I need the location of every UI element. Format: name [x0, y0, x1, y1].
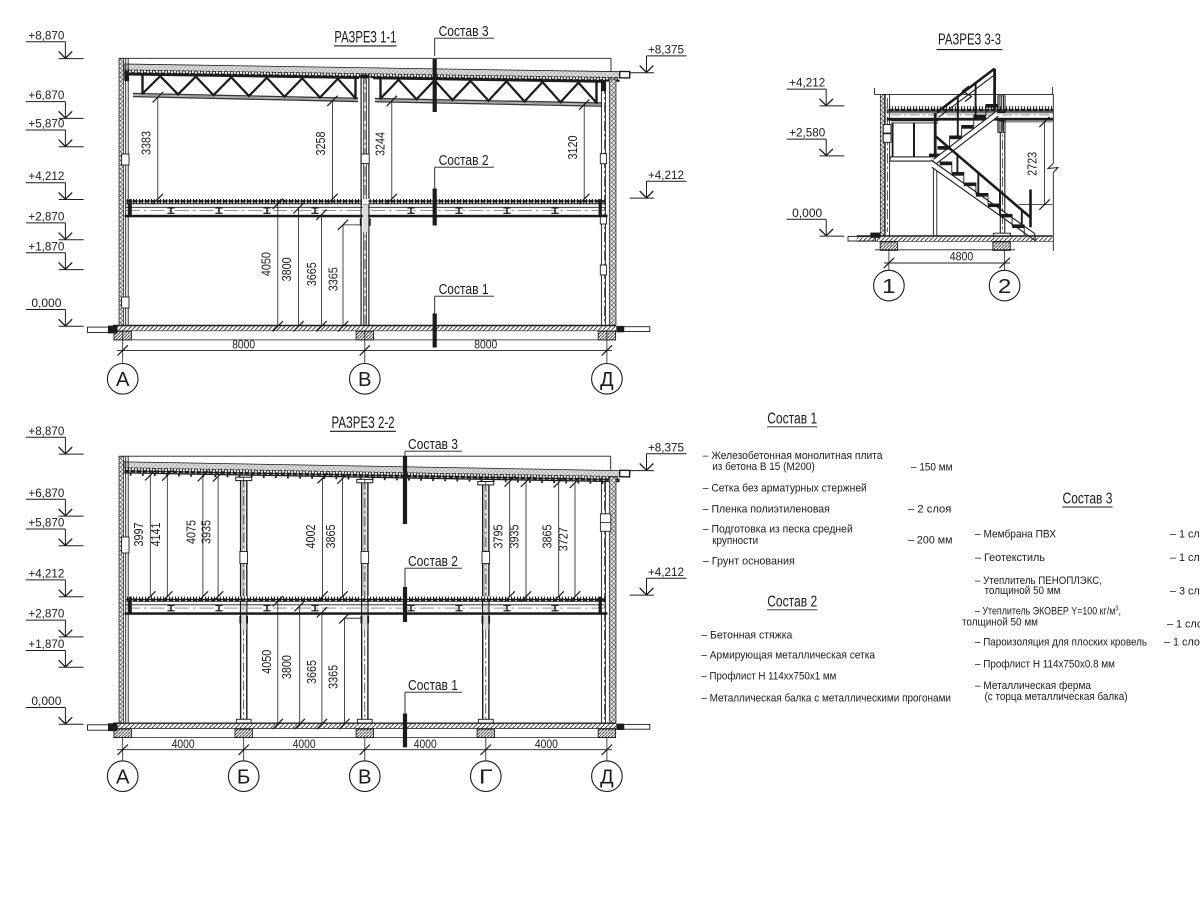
- svg-text:3935: 3935: [200, 520, 214, 544]
- svg-text:– Армирующая металлическая се: – Армирующая металлическая сетка: [701, 650, 875, 662]
- svg-text:2723: 2723: [1026, 152, 1040, 176]
- svg-text:РАЗРЕЗ 1-1: РАЗРЕЗ 1-1: [334, 29, 396, 47]
- svg-text:Состав 1: Состав 1: [408, 678, 458, 694]
- svg-text:3244: 3244: [373, 132, 387, 156]
- svg-text:– Подготовка из песка средней: – Подготовка из песка средней: [703, 524, 853, 536]
- svg-text:– 200 мм: – 200 мм: [908, 535, 953, 547]
- svg-text:Г: Г: [479, 766, 493, 789]
- svg-text:+6,870: +6,870: [28, 90, 64, 102]
- svg-text:3665: 3665: [305, 660, 319, 684]
- svg-text:4000: 4000: [535, 739, 558, 751]
- svg-text:Б: Б: [237, 766, 251, 789]
- svg-text:+1,870: +1,870: [28, 241, 64, 253]
- svg-text:3800: 3800: [280, 655, 294, 679]
- svg-text:Состав 1: Состав 1: [439, 282, 489, 298]
- svg-text:– Профлист Н 114х750х0.8 мм: – Профлист Н 114х750х0.8 мм: [975, 658, 1115, 670]
- svg-text:0,000: 0,000: [792, 208, 822, 220]
- svg-text:1: 1: [882, 275, 896, 298]
- svg-text:РАЗРЕЗ 3-3: РАЗРЕЗ 3-3: [938, 32, 1001, 49]
- svg-text:0,000: 0,000: [31, 696, 61, 708]
- svg-text:Состав 3: Состав 3: [408, 437, 458, 453]
- svg-text:Д: Д: [600, 368, 614, 391]
- svg-text:0,000: 0,000: [31, 298, 61, 310]
- svg-text:+2,580: +2,580: [789, 128, 825, 140]
- svg-text:толщиной 50 мм: толщиной 50 мм: [985, 585, 1061, 597]
- svg-text:толщиной 50 мм: толщиной 50 мм: [962, 616, 1038, 628]
- svg-text:– Грунт основания: – Грунт основания: [703, 556, 795, 568]
- svg-text:4000: 4000: [414, 739, 437, 751]
- svg-text:3665: 3665: [305, 262, 319, 286]
- svg-text:3365: 3365: [326, 665, 340, 689]
- svg-text:3800: 3800: [280, 257, 294, 281]
- svg-text:3383: 3383: [139, 131, 153, 155]
- svg-text:4800: 4800: [950, 251, 974, 263]
- svg-text:В: В: [358, 766, 372, 789]
- svg-text:– Бетонная стяжка: – Бетонная стяжка: [701, 630, 792, 642]
- svg-text:+8,870: +8,870: [28, 426, 64, 438]
- svg-text:3727: 3727: [557, 527, 571, 551]
- svg-text:+4,212: +4,212: [789, 78, 825, 90]
- svg-text:3865: 3865: [540, 524, 554, 548]
- svg-text:3795: 3795: [491, 524, 505, 548]
- svg-text:+4,212: +4,212: [28, 171, 64, 183]
- svg-text:– 1 слой: – 1 слой: [1167, 619, 1200, 631]
- svg-text:Д: Д: [600, 766, 614, 789]
- svg-text:– 1 слой: – 1 слой: [1170, 529, 1200, 541]
- svg-text:– 3 слоя: – 3 слоя: [1170, 586, 1200, 598]
- svg-text:– 2 слоя: – 2 слоя: [908, 503, 951, 515]
- svg-text:3865: 3865: [324, 524, 338, 548]
- svg-text:2: 2: [998, 275, 1012, 298]
- svg-text:4000: 4000: [293, 739, 316, 751]
- svg-text:+4,212: +4,212: [648, 567, 684, 579]
- svg-text:Состав 2: Состав 2: [439, 153, 489, 169]
- svg-text:– Мембрана ПВХ: – Мембрана ПВХ: [975, 529, 1056, 541]
- svg-text:+2,870: +2,870: [28, 609, 64, 621]
- svg-text:– 1 слой: – 1 слой: [1170, 552, 1200, 564]
- svg-text:Состав 3: Состав 3: [1063, 491, 1113, 508]
- svg-text:+5,870: +5,870: [28, 518, 64, 530]
- svg-text:+2,870: +2,870: [28, 211, 64, 223]
- svg-text:– Пароизоляция для плоских кр: – Пароизоляция для плоских кровель: [975, 637, 1147, 649]
- svg-text:4141: 4141: [149, 522, 163, 546]
- svg-text:3120: 3120: [566, 135, 580, 159]
- svg-text:3997: 3997: [132, 522, 146, 546]
- svg-text:– Пленка полиэтиленовая: – Пленка полиэтиленовая: [703, 503, 830, 515]
- svg-text:3935: 3935: [508, 524, 522, 548]
- svg-text:+6,870: +6,870: [28, 488, 64, 500]
- svg-text:крупности: крупности: [712, 535, 758, 547]
- svg-text:Состав 2: Состав 2: [408, 554, 458, 570]
- svg-text:– Профлист Н 114хх750х1 мм: – Профлист Н 114хх750х1 мм: [701, 670, 836, 682]
- svg-text:4050: 4050: [260, 650, 274, 674]
- svg-text:3365: 3365: [327, 267, 341, 291]
- svg-text:4075: 4075: [185, 520, 199, 544]
- svg-text:8000: 8000: [232, 340, 255, 352]
- svg-text:8000: 8000: [474, 340, 497, 352]
- svg-text:В: В: [358, 368, 372, 391]
- svg-text:+1,870: +1,870: [28, 639, 64, 651]
- svg-text:– Металлическая балка с метал: – Металлическая балка с металлическими п…: [701, 692, 951, 704]
- svg-text:4000: 4000: [172, 739, 195, 751]
- svg-text:+5,870: +5,870: [28, 119, 64, 131]
- svg-text:Состав 2: Состав 2: [767, 593, 817, 610]
- svg-text:РАЗРЕЗ 2-2: РАЗРЕЗ 2-2: [332, 414, 395, 432]
- svg-text:– Сетка без арматурных стержн: – Сетка без арматурных стержней: [703, 482, 867, 494]
- svg-text:А: А: [116, 368, 130, 391]
- svg-text:Состав 3: Состав 3: [439, 24, 489, 40]
- svg-text:из бетона В 15 (М200): из бетона В 15 (М200): [712, 461, 815, 473]
- svg-text:4050: 4050: [260, 252, 274, 276]
- svg-text:А: А: [116, 766, 130, 789]
- svg-text:3258: 3258: [314, 131, 328, 155]
- svg-text:– 1 слой: – 1 слой: [1164, 637, 1200, 649]
- svg-text:+4,212: +4,212: [28, 568, 64, 580]
- svg-text:4002: 4002: [304, 524, 318, 548]
- svg-text:(с торца металлическая балка): (с торца металлическая балка): [985, 691, 1128, 703]
- svg-text:– 150 мм: – 150 мм: [911, 462, 953, 474]
- svg-text:Состав 1: Состав 1: [767, 410, 817, 427]
- svg-text:– Железобетонная монолитная: – Железобетонная монолитная плита: [703, 450, 883, 462]
- svg-text:+8,870: +8,870: [28, 30, 64, 42]
- svg-text:+8,375: +8,375: [648, 442, 684, 454]
- svg-text:+4,212: +4,212: [648, 170, 684, 182]
- svg-text:– Геотекстиль: – Геотекстиль: [975, 552, 1045, 564]
- svg-text:+8,375: +8,375: [648, 44, 684, 56]
